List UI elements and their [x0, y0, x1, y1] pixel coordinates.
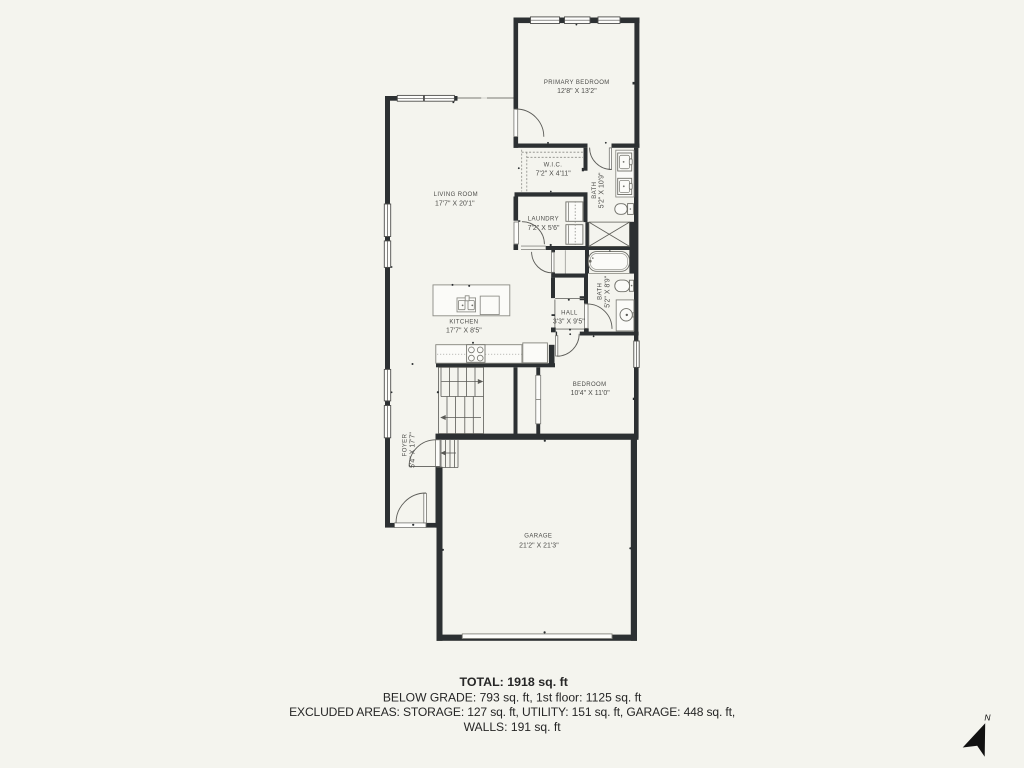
svg-text:TOTAL: 1918 sq. ft: TOTAL: 1918 sq. ft: [460, 675, 568, 689]
svg-text:PRIMARY BEDROOM: PRIMARY BEDROOM: [544, 80, 610, 86]
svg-text:7'2" X 5'6": 7'2" X 5'6": [528, 225, 560, 232]
svg-text:BATH: BATH: [597, 283, 603, 300]
svg-text:BEDROOM: BEDROOM: [573, 382, 607, 388]
svg-text:21'2" X 21'3": 21'2" X 21'3": [519, 542, 559, 549]
svg-text:WALLS: 191 sq. ft: WALLS: 191 sq. ft: [464, 720, 562, 734]
svg-text:5'4" X 17'7": 5'4" X 17'7": [409, 432, 416, 468]
svg-text:10'4" X 11'0": 10'4" X 11'0": [571, 390, 611, 397]
svg-text:FOYER: FOYER: [403, 433, 409, 456]
svg-text:KITCHEN: KITCHEN: [449, 320, 478, 326]
svg-text:3'3" X 9'5": 3'3" X 9'5": [553, 318, 585, 325]
svg-text:BATH: BATH: [592, 182, 598, 199]
svg-text:17'7" X 20'1": 17'7" X 20'1": [435, 201, 475, 208]
svg-text:5'2" X 8'9": 5'2" X 8'9": [604, 275, 611, 307]
svg-text:W.I.C.: W.I.C.: [544, 163, 563, 169]
svg-text:5'2" X 10'9": 5'2" X 10'9": [599, 172, 606, 208]
svg-text:HALL: HALL: [561, 311, 578, 317]
svg-text:EXCLUDED AREAS: STORAGE: 127 s: EXCLUDED AREAS: STORAGE: 127 sq. ft, UTI…: [289, 705, 735, 719]
svg-text:LAUNDRY: LAUNDRY: [528, 216, 559, 222]
svg-text:N: N: [984, 713, 991, 723]
svg-text:LIVING ROOM: LIVING ROOM: [434, 192, 478, 198]
svg-text:12'8" X 13'2": 12'8" X 13'2": [557, 88, 597, 95]
svg-text:7'2" X 4'11": 7'2" X 4'11": [536, 170, 572, 177]
svg-text:GARAGE: GARAGE: [524, 533, 552, 539]
svg-text:17'7" X 8'5": 17'7" X 8'5": [446, 328, 482, 335]
svg-text:BELOW GRADE: 793 sq. ft, 1st f: BELOW GRADE: 793 sq. ft, 1st floor: 1125…: [383, 690, 642, 704]
